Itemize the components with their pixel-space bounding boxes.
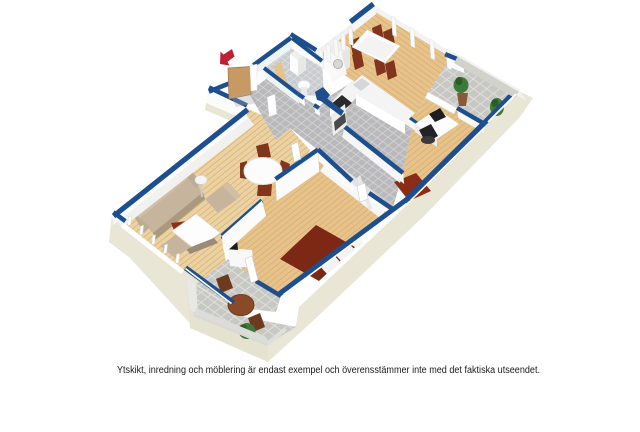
svg-text:Ytskikt, inredning och möbleri: Ytskikt, inredning och möblering är enda… <box>117 365 540 376</box>
